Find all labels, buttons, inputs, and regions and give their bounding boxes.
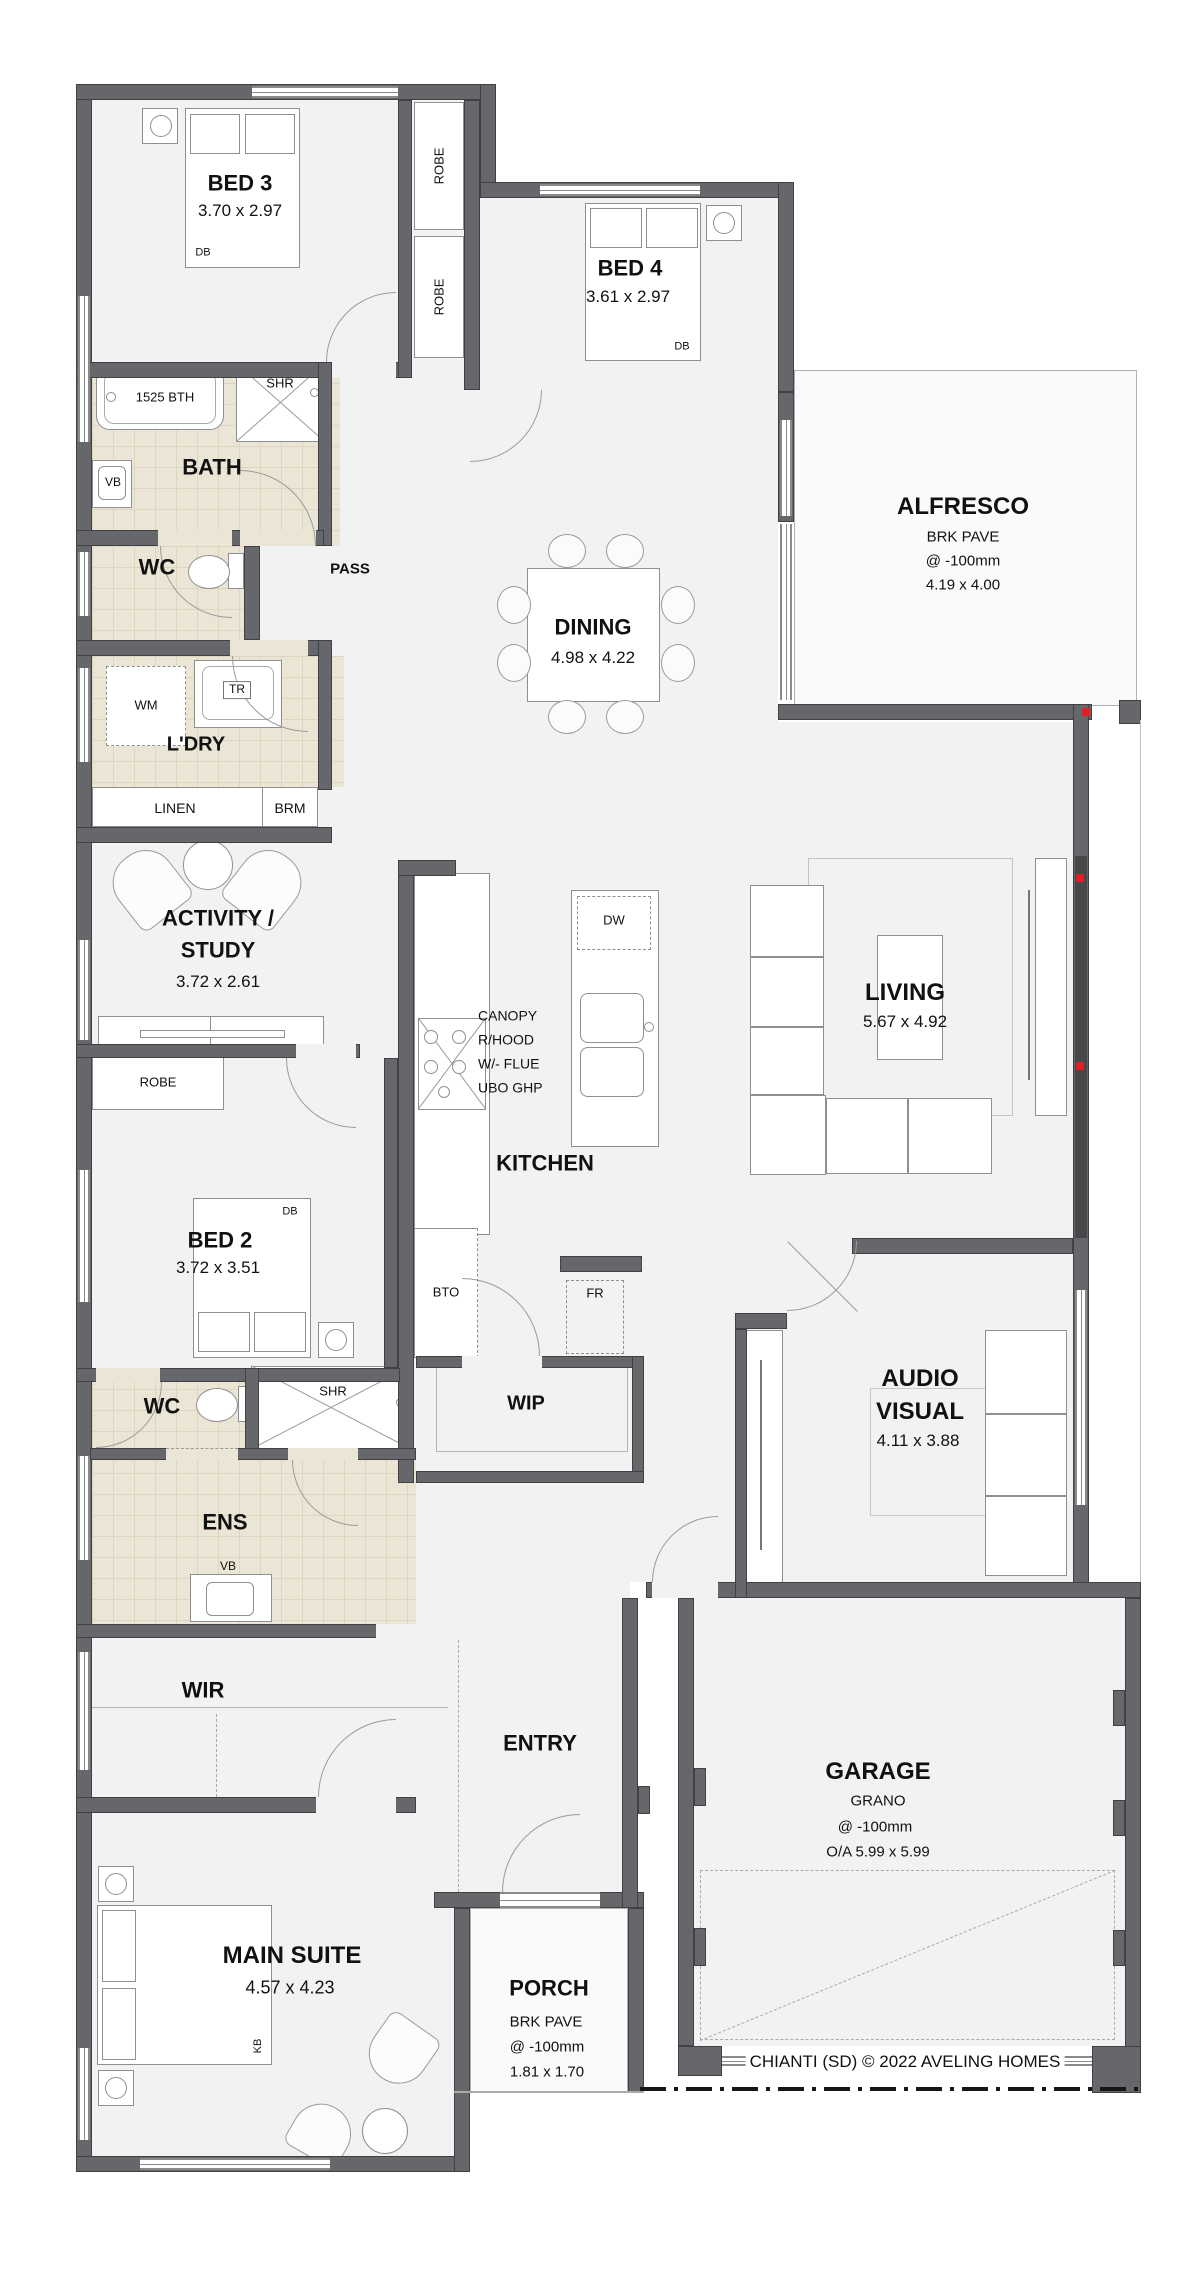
room-label-wip: WIP (507, 1393, 545, 1416)
room-dims-dining: 4.98 x 4.22 (551, 648, 635, 668)
room-label-wc: WC (139, 554, 176, 579)
wall-segment (1119, 700, 1141, 724)
dining-chair (548, 534, 586, 568)
room-label-entry: ENTRY (503, 1730, 577, 1755)
lamp (105, 1873, 127, 1895)
wall-pier (638, 1786, 650, 1814)
lamp (325, 1329, 347, 1351)
pillow (102, 1988, 136, 2060)
bathtub-label: 1525 BTH (136, 391, 195, 406)
canopy-label-1: CANOPY (478, 1008, 537, 1023)
wall-segment (1125, 1598, 1141, 2062)
bed-type-label: KB (252, 2039, 264, 2054)
wall-pier (1113, 1800, 1125, 1836)
room-finish-garage: GRANO (850, 1792, 905, 1809)
room-dims-porch: 1.81 x 1.70 (510, 2063, 584, 2080)
side-table (362, 2108, 408, 2154)
sink-tap (644, 1022, 654, 1032)
wall-segment (398, 875, 414, 1483)
toilet-bowl (196, 1388, 238, 1422)
sliding-door-living (1075, 856, 1087, 1238)
dining-chair (497, 644, 531, 682)
wall-segment (852, 1238, 1073, 1254)
room-label-kitchen: KITCHEN (496, 1150, 594, 1175)
sofa-seat (750, 1027, 824, 1095)
room-label-activity-1: ACTIVITY / (162, 905, 274, 930)
linen-label: LINEN (154, 800, 195, 816)
sink-bowl (580, 993, 644, 1043)
wall-pier (1113, 1930, 1125, 1966)
pillow (254, 1312, 306, 1352)
pillow (198, 1312, 250, 1352)
tv-unit-living (1035, 858, 1067, 1116)
wall-segment (384, 1058, 398, 1368)
window (1075, 1290, 1087, 1505)
desk-monitor (140, 1030, 285, 1038)
room-label-bath: BATH (182, 454, 241, 479)
door-opening (96, 1368, 160, 1382)
door-opening (376, 1624, 416, 1638)
washing-machine-label: WM (134, 699, 157, 714)
fridge-label: FR (586, 1287, 603, 1302)
window (540, 184, 700, 196)
tv-unit-av (745, 1330, 783, 1583)
front-door-opening (500, 1892, 600, 1908)
trough-label: TR (223, 681, 251, 699)
sofa-corner (750, 1095, 826, 1175)
room-label-bed2: BED 2 (188, 1227, 253, 1252)
door-opening (462, 1356, 542, 1368)
wall-segment (735, 1329, 747, 1598)
robe-label: ROBE (432, 148, 447, 185)
door-opening (158, 530, 232, 546)
bed-type-label: DB (674, 341, 689, 354)
sink-bowl (580, 1047, 644, 1097)
shower-label: SHR (266, 377, 293, 392)
room-dims-mainsuite: 4.57 x 4.23 (245, 1978, 334, 1999)
room-dims-av: 4.11 x 3.88 (877, 1431, 960, 1451)
dining-chair (497, 586, 531, 624)
linen-divider (262, 787, 263, 827)
burner (452, 1030, 466, 1044)
wall-segment (454, 1908, 470, 2172)
wall-segment (778, 182, 794, 392)
wall-segment (398, 860, 456, 876)
door-opening (288, 1448, 358, 1460)
dining-chair (548, 700, 586, 734)
room-label-pass: PASS (330, 560, 370, 577)
wardrobe-shelf (92, 1638, 448, 1708)
window (78, 296, 90, 442)
room-label-alfresco: ALFRESCO (897, 493, 1029, 521)
room-label-living: LIVING (865, 979, 945, 1007)
dining-chair (606, 700, 644, 734)
wall-segment (464, 100, 480, 390)
wardrobe-divider (216, 1714, 217, 1797)
pillow (102, 1910, 136, 1982)
canopy-label-3: W/- FLUE (478, 1056, 539, 1071)
bto-label: BTO (433, 1286, 460, 1301)
pillow (590, 208, 642, 248)
lamp (713, 212, 735, 234)
sofa-seat (750, 885, 824, 957)
room-level-garage: @ -100mm (838, 1818, 912, 1835)
room-label-bed4: BED 4 (598, 255, 663, 280)
sofa-seat (985, 1496, 1067, 1576)
window (78, 940, 90, 1040)
burner (424, 1030, 438, 1044)
robe-label: ROBE (432, 279, 447, 316)
dining-chair (661, 644, 695, 682)
wall-pier (1092, 2046, 1141, 2093)
window (78, 2048, 90, 2140)
burner (452, 1060, 466, 1074)
window (78, 1170, 90, 1302)
wall-segment (560, 1256, 642, 1272)
window (78, 1652, 90, 1770)
wall-segment (76, 827, 332, 843)
room-dims-bed4: 3.61 x 2.97 (586, 287, 670, 307)
activity-table (183, 840, 233, 890)
pillow (245, 114, 295, 154)
room-label-mainsuite: MAIN SUITE (223, 1942, 362, 1970)
wall-segment (632, 1356, 644, 1483)
window (78, 552, 90, 616)
shower-label: SHR (319, 1385, 346, 1400)
room-dims-living: 5.67 x 4.92 (863, 1012, 947, 1032)
burner (438, 1086, 450, 1098)
sofa-seat (908, 1098, 992, 1174)
room-label-porch: PORCH (509, 1975, 588, 2000)
robe-label: ROBE (140, 1076, 177, 1091)
wall-segment (245, 1368, 259, 1452)
door-opening (230, 640, 308, 656)
window (78, 1456, 90, 1560)
vanity-label: VB (105, 476, 121, 490)
wall-pier (1113, 1690, 1125, 1726)
pillow (190, 114, 240, 154)
tv-screen (760, 1360, 762, 1550)
floor-plan: BED 3 3.70 x 2.97 DB ROBE ROBE BED 4 3.6… (0, 0, 1200, 2291)
slider-marker (1076, 1062, 1084, 1070)
room-label-garage: GARAGE (825, 1758, 930, 1786)
tv-screen (1028, 890, 1030, 1080)
wall-segment (318, 640, 332, 790)
wall-pier (678, 2046, 722, 2076)
wall-pier (694, 1928, 706, 1966)
window (780, 420, 792, 516)
porch-edge-line (454, 2091, 644, 2093)
wall-segment (318, 362, 332, 546)
room-label-ens: ENS (202, 1509, 247, 1534)
wall-segment (622, 1598, 638, 1908)
tap (106, 392, 116, 402)
room-level-porch: @ -100mm (510, 2038, 584, 2055)
wall-segment (646, 1582, 1141, 1598)
room-label-av-2: VISUAL (876, 1398, 964, 1426)
canopy-label-4: UBO GHP (478, 1080, 543, 1095)
wall-segment (735, 1313, 787, 1329)
wall-segment (778, 704, 1092, 720)
door-opening (652, 1582, 718, 1598)
lamp (150, 115, 172, 137)
site-boundary-line (640, 2087, 1141, 2091)
burner (424, 1060, 438, 1074)
wall-segment (244, 546, 260, 640)
bulkhead-dashed-line (458, 1640, 459, 1892)
wall-segment (398, 100, 412, 378)
door-opening (316, 1797, 396, 1813)
door-opening (332, 362, 396, 378)
vanity-label: VB (220, 1560, 236, 1574)
room-level-alfresco: @ -100mm (926, 552, 1000, 569)
room-dims-activity: 3.72 x 2.61 (176, 972, 260, 992)
wall-segment (678, 1598, 694, 2046)
room-dims-bed3: 3.70 x 2.97 (198, 201, 282, 221)
wall-segment (90, 1448, 416, 1460)
room-dims-garage: O/A 5.99 x 5.99 (826, 1843, 929, 1860)
sliding-door-alfresco (780, 524, 792, 700)
sofa-seat (985, 1330, 1067, 1414)
boundary-line (1140, 720, 1141, 1582)
room-label-av-1: AUDIO (881, 1365, 958, 1393)
slider-marker (1076, 874, 1084, 882)
room-label-activity-2: STUDY (181, 937, 256, 962)
slider-marker (1082, 708, 1090, 716)
room-label-laundry: L'DRY (167, 734, 225, 757)
window (140, 2158, 330, 2170)
pillow (646, 208, 698, 248)
dining-chair (661, 586, 695, 624)
door-opening (296, 1044, 356, 1058)
window (252, 86, 398, 98)
sofa-seat (750, 957, 824, 1027)
bed-type-label: DB (282, 1206, 297, 1219)
wall-pier (694, 1768, 706, 1806)
room-dims-bed2: 3.72 x 3.51 (176, 1258, 260, 1278)
bed-type-label: DB (195, 247, 210, 260)
room-label-dining: DINING (555, 614, 632, 639)
wall-segment (76, 1624, 416, 1638)
wall-segment (628, 1908, 644, 2093)
wall-segment (480, 84, 496, 198)
copyright-text: CHIANTI (SD) © 2022 AVELING HOMES (746, 2052, 1065, 2072)
lamp (105, 2077, 127, 2099)
wall-segment (416, 1471, 644, 1483)
broom-label: BRM (274, 800, 305, 816)
dishwasher-label: DW (603, 914, 625, 929)
canopy-label-2: R/HOOD (478, 1032, 534, 1047)
sofa-seat (985, 1414, 1067, 1496)
room-finish-porch: BRK PAVE (510, 2013, 583, 2030)
room-label-wc-ens: WC (144, 1393, 181, 1418)
sofa-seat (826, 1098, 908, 1174)
vanity-basin (206, 1582, 254, 1616)
room-finish-alfresco: BRK PAVE (927, 528, 1000, 545)
window (78, 668, 90, 762)
room-label-wir: WIR (182, 1677, 225, 1702)
room-dims-alfresco: 4.19 x 4.00 (926, 576, 1000, 593)
dining-chair (606, 534, 644, 568)
room-label-bed3: BED 3 (208, 170, 273, 195)
door-opening (166, 1448, 238, 1460)
